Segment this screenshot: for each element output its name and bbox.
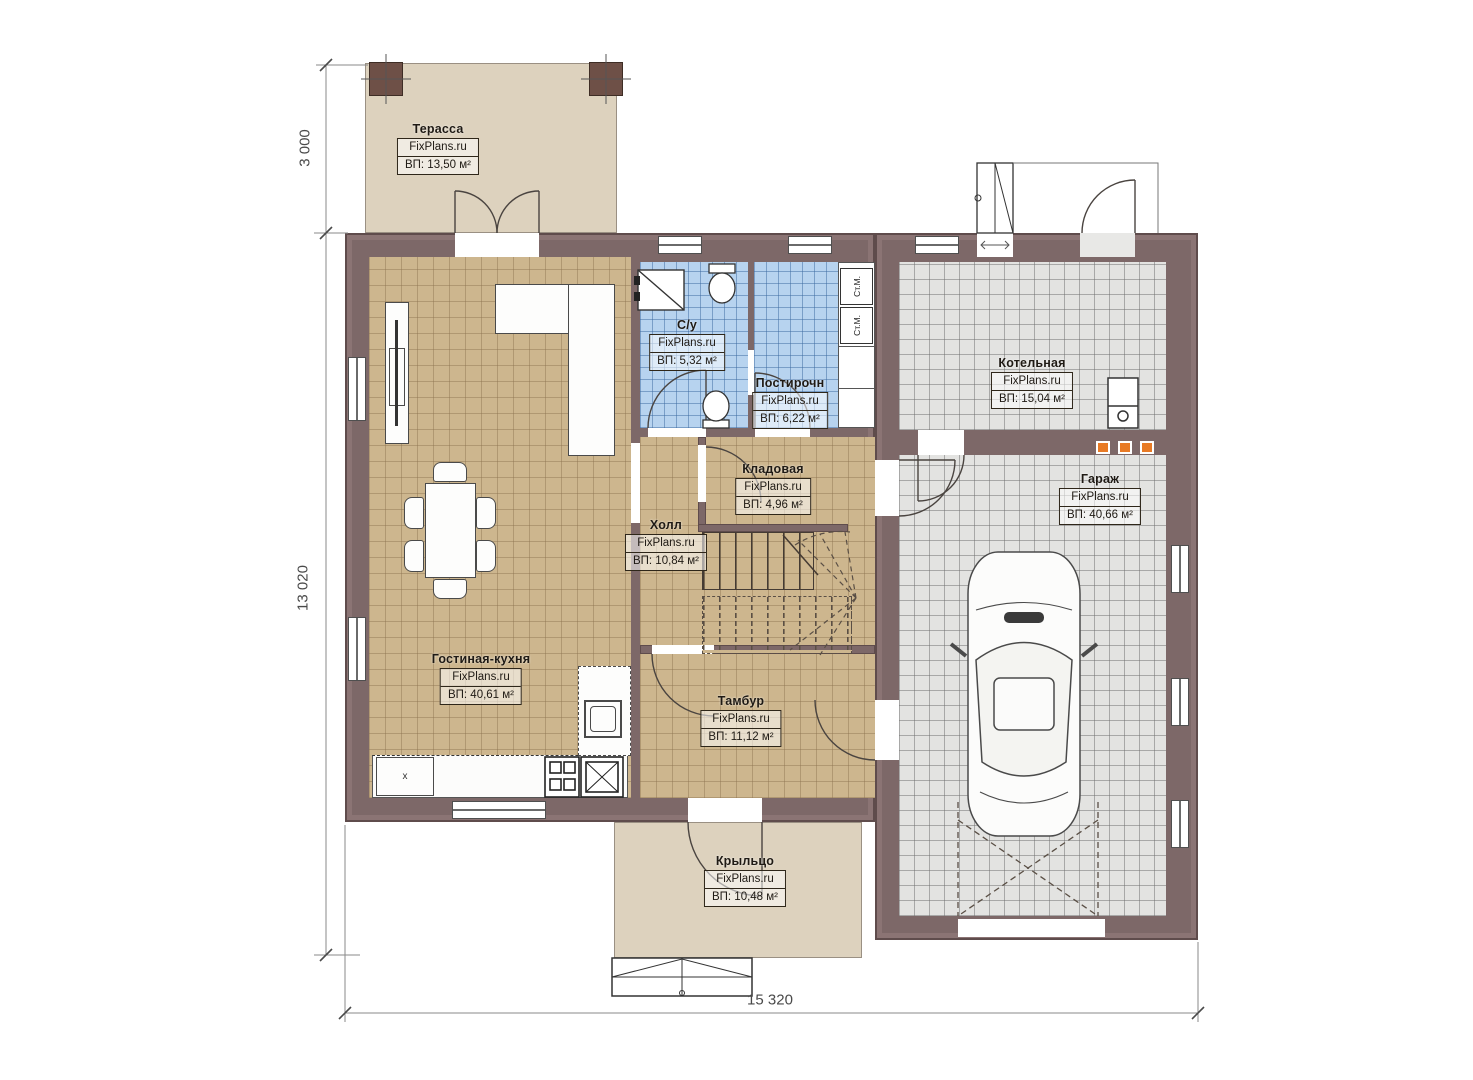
cabinet-cell xyxy=(839,347,874,389)
tv-line xyxy=(395,320,398,426)
dining-chair xyxy=(476,497,496,529)
dining-chair xyxy=(404,540,424,572)
washing-machine-label: Ст.М. xyxy=(852,315,862,336)
dining-chair xyxy=(476,540,496,572)
watermark: FixPlans.ru xyxy=(992,373,1072,391)
washing-machine: Ст.М. xyxy=(840,307,873,344)
window xyxy=(788,236,832,254)
dimension-total-depth: 13 020 xyxy=(295,565,312,611)
room-area: ВП: 11,12 м² xyxy=(701,729,780,746)
living-hall-passage xyxy=(631,443,640,523)
room-area: ВП: 13,50 м² xyxy=(398,157,478,174)
room-label-garage: Гараж FixPlans.ru ВП: 40,66 м² xyxy=(1059,472,1141,525)
porch-steps xyxy=(612,958,752,996)
watermark: FixPlans.ru xyxy=(1060,489,1140,507)
window xyxy=(1171,678,1189,726)
stairs-lower-flight xyxy=(702,532,814,590)
watermark: FixPlans.ru xyxy=(753,393,827,411)
boiler-entrance-opening xyxy=(1080,233,1135,257)
room-name: Постирочн xyxy=(752,376,828,390)
room-area: ВП: 40,61 м² xyxy=(441,687,521,704)
dimension-total-width: 15 320 xyxy=(747,992,793,1009)
fridge-mark: x xyxy=(403,771,408,782)
room-label-porch: Крыльцо FixPlans.ru ВП: 10,48 м² xyxy=(704,854,786,907)
room-label-storage: Кладовая FixPlans.ru ВП: 4,96 м² xyxy=(735,462,811,515)
room-area: ВП: 10,48 м² xyxy=(705,889,785,906)
laundry-door-opening xyxy=(755,428,810,437)
watermark: FixPlans.ru xyxy=(441,669,521,687)
room-name: Терасса xyxy=(397,122,479,136)
window xyxy=(452,801,546,819)
room-area: ВП: 40,66 м² xyxy=(1060,507,1140,524)
boiler-hall-door-opening xyxy=(918,430,964,455)
room-area: ВП: 6,22 м² xyxy=(753,411,827,428)
sofa-body xyxy=(568,284,615,456)
dining-chair xyxy=(433,579,467,599)
terrace-column xyxy=(589,62,623,96)
window xyxy=(1171,800,1189,848)
window xyxy=(658,236,702,254)
watermark: FixPlans.ru xyxy=(705,871,785,889)
orange-vent xyxy=(1096,441,1110,454)
room-label-laundry: Постирочн FixPlans.ru ВП: 6,22 м² xyxy=(752,376,828,429)
window xyxy=(915,236,959,254)
room-name: С/у xyxy=(649,318,725,332)
room-name: Гараж xyxy=(1059,472,1141,486)
vestibule-garage-door-opening xyxy=(875,700,899,760)
watermark: FixPlans.ru xyxy=(626,535,706,553)
dimension-terrace-depth: 3 000 xyxy=(297,129,314,167)
terrace-column xyxy=(369,62,403,96)
watermark: FixPlans.ru xyxy=(736,479,810,497)
stairs-upper-flight xyxy=(702,596,852,654)
storage-door-opening xyxy=(698,445,706,502)
dining-chair xyxy=(433,462,467,482)
room-area: ВП: 4,96 м² xyxy=(736,497,810,514)
terrace-door-opening xyxy=(455,233,539,257)
room-name: Кладовая xyxy=(735,462,811,476)
room-name: Крыльцо xyxy=(704,854,786,868)
room-name: Котельная xyxy=(991,356,1073,370)
floor-plan-canvas: Ст.М. Ст.М. x 3 xyxy=(0,0,1473,1080)
watermark: FixPlans.ru xyxy=(701,711,780,729)
island-sink-basin xyxy=(590,706,616,732)
room-name: Холл xyxy=(625,518,707,532)
room-label-bathroom: С/у FixPlans.ru ВП: 5,32 м² xyxy=(649,318,725,371)
orange-vent xyxy=(1140,441,1154,454)
hall-garage-door-opening xyxy=(875,460,899,516)
room-area: ВП: 10,84 м² xyxy=(626,553,706,570)
room-label-hall: Холл FixPlans.ru ВП: 10,84 м² xyxy=(625,518,707,571)
fridge: x xyxy=(376,757,434,796)
bathroom-door-opening xyxy=(648,428,706,437)
room-name: Тамбур xyxy=(700,694,781,708)
dining-table xyxy=(425,483,476,578)
room-label-vestibule: Тамбур FixPlans.ru ВП: 11,12 м² xyxy=(700,694,781,747)
window xyxy=(1171,545,1189,593)
window xyxy=(348,617,366,681)
room-label-terrace: Терасса FixPlans.ru ВП: 13,50 м² xyxy=(397,122,479,175)
room-name: Гостиная-кухня xyxy=(432,652,531,666)
entry-steps-opening xyxy=(977,233,1013,257)
front-door-opening xyxy=(688,798,762,822)
room-label-boiler: Котельная FixPlans.ru ВП: 15,04 м² xyxy=(991,356,1073,409)
room-area: ВП: 15,04 м² xyxy=(992,391,1072,408)
washing-machine: Ст.М. xyxy=(840,268,873,305)
watermark: FixPlans.ru xyxy=(650,335,724,353)
storage-wall-horizontal xyxy=(698,524,848,532)
room-area: ВП: 5,32 м² xyxy=(650,353,724,370)
window xyxy=(348,357,366,421)
orange-vent xyxy=(1118,441,1132,454)
dining-chair xyxy=(404,497,424,529)
garage-gate-opening xyxy=(958,919,1105,937)
room-label-living-kitchen: Гостиная-кухня FixPlans.ru ВП: 40,61 м² xyxy=(432,652,531,705)
watermark: FixPlans.ru xyxy=(398,139,478,157)
washing-machine-label: Ст.М. xyxy=(852,276,862,297)
